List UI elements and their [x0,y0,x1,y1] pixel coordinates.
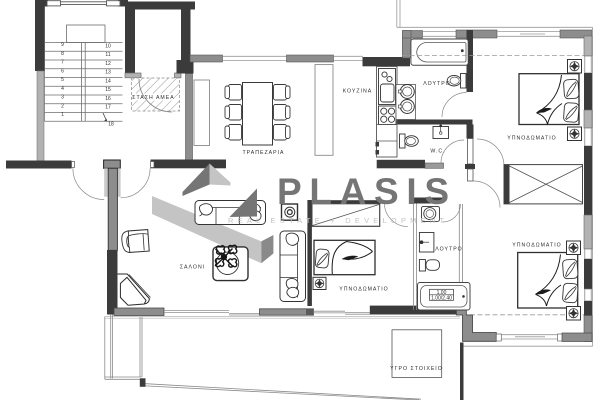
svg-text:ΥΠΝΟΔΩΜΑΤΙΟ: ΥΠΝΟΔΩΜΑΤΙΟ [507,136,556,142]
svg-text:7: 7 [61,60,64,66]
svg-text:9: 9 [61,42,64,48]
svg-text:ΚΟΥΖΙΝΑ: ΚΟΥΖΙΝΑ [343,88,373,94]
svg-text:5: 5 [61,77,64,83]
svg-text:4: 4 [61,86,64,92]
svg-text:ΣΑΛΟΝΙ: ΣΑΛΟΝΙ [180,264,205,270]
svg-text:ΥΠΝΟΔΩΜΑΤΙΟ: ΥΠΝΟΔΩΜΑΤΙΟ [512,243,561,249]
svg-text:17: 17 [105,105,111,111]
svg-text:14: 14 [105,79,111,85]
svg-text:ΥΠΝΟΔΩΜΑΤΙΟ: ΥΠΝΟΔΩΜΑΤΙΟ [339,286,388,292]
svg-text:10: 10 [105,44,111,50]
svg-text:W.C.: W.C. [430,149,445,155]
svg-text:18: 18 [108,122,114,128]
svg-text:2: 2 [61,104,64,110]
svg-text:ΛΟΥΤΡΟ: ΛΟΥΤΡΟ [435,247,462,253]
svg-text:12: 12 [105,61,111,67]
svg-text:11: 11 [105,52,110,58]
svg-text:1.00/2.40: 1.00/2.40 [431,295,452,301]
svg-text:15: 15 [105,87,111,93]
svg-text:3: 3 [61,95,64,101]
svg-text:ΤΡΑΠΕΖΑΡΙΑ: ΤΡΑΠΕΖΑΡΙΑ [242,150,284,156]
svg-text:1: 1 [61,112,64,118]
svg-text:ΥΓΡΟ ΣΤΟΙΧΕΙΟ: ΥΓΡΟ ΣΤΟΙΧΕΙΟ [390,366,443,372]
svg-text:8: 8 [61,51,64,57]
svg-text:16: 16 [105,96,111,102]
svg-text:13: 13 [105,70,111,76]
svg-text:ΛΟΥΤΡΟ: ΛΟΥΤΡΟ [423,81,450,87]
svg-text:ΣΤΑΣΗ ΑΜΕΑ: ΣΤΑΣΗ ΑΜΕΑ [132,95,174,101]
svg-text:6: 6 [61,69,64,75]
